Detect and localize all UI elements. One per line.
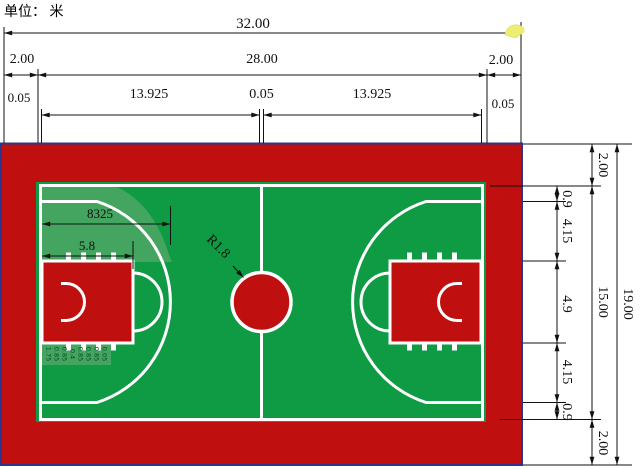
dim-text-key-to-arc-bottom: 4.15 [559,360,574,385]
lane-tick [452,253,457,261]
dim-text-bottom-margin: 2.00 [595,431,610,456]
lane-tick [452,343,457,351]
dim-text-top-margin: 2.00 [595,153,610,178]
lane-tick [437,253,442,261]
dim-text-line-center: 0.05 [249,87,274,102]
dim-text-arc-depth: 8325 [87,206,113,221]
key-right [390,261,481,343]
dim-text-key-length: 5.8 [79,238,95,253]
lane-tick [407,343,412,351]
dim-text-line-right: 0.05 [492,96,515,111]
drawing-svg: 单位： 米 [0,0,640,469]
lane-mark-label-1: 0.85 [53,347,61,361]
dim-text-inner-width: 28.00 [246,52,278,67]
dim-text-key-width: 4.9 [559,295,574,313]
court-dimension-drawing: 单位： 米 [0,0,640,469]
dim-text-court-height: 15.00 [595,286,610,318]
lane-mark-labels: 1.75 0.85 0.85 0.4 0.85 0.85 0.85 0.05 [45,347,109,361]
lane-tick [422,253,427,261]
dim-text-side-to-arc-top: 0.9 [559,190,574,208]
lane-mark-label-6: 0.85 [93,347,101,361]
lane-mark-label-5: 0.85 [85,347,93,361]
center-circle [232,273,291,332]
lane-tick [111,343,116,351]
court [1,144,522,466]
dim-text-left-margin: 2.00 [10,52,35,67]
dim-text-line-left: 0.05 [8,90,31,105]
lane-mark-label-7: 0.05 [101,347,109,361]
unit-label: 单位： 米 [4,4,64,20]
lane-mark-label-4: 0.85 [77,347,85,361]
dim-text-total-height: 19.00 [620,288,635,320]
top-dimensions: 32.00 2.00 28.00 2.00 0.05 13.925 0.05 1… [4,16,524,143]
key-left [42,261,133,343]
lane-tick [422,343,427,351]
dim-text-arc-to-side-bottom: 0.9 [559,403,574,421]
lane-mark-label-0: 1.75 [45,347,53,361]
lane-tick [437,343,442,351]
lane-mark-label-2: 0.85 [61,347,69,361]
lane-mark-label-3: 0.4 [69,349,77,359]
dim-text-total-width: 32.00 [236,16,270,32]
dim-text-arc-to-key-top: 4.15 [559,219,574,244]
dim-text-half-right: 13.925 [353,87,392,102]
dim-text-right-margin: 2.00 [489,53,514,68]
dim-text-half-left: 13.925 [130,87,169,102]
lane-tick [407,253,412,261]
